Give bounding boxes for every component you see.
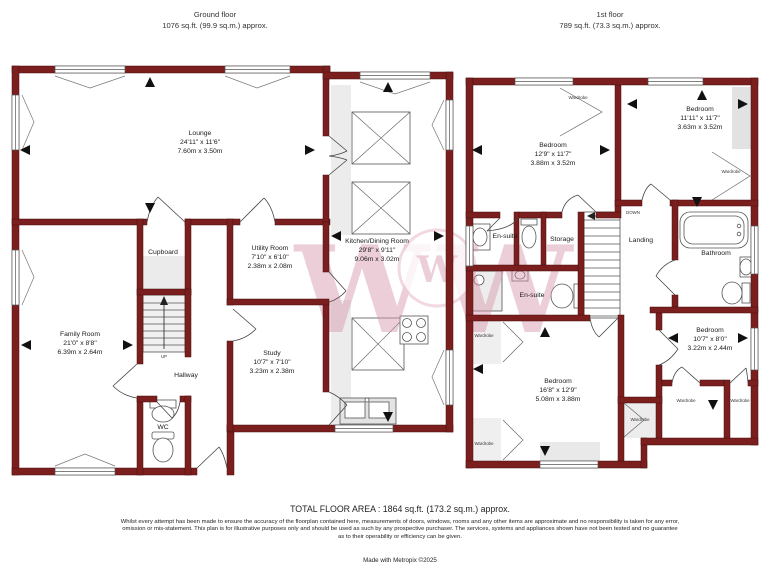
wardrobe-label: Wardrobe xyxy=(721,169,740,174)
room-label-lounge: Lounge 24'11" x 11'6" 7.60m x 3.50m xyxy=(178,130,223,156)
wardrobe-label: Wardrobe xyxy=(474,333,493,338)
room-label-ensuite-bottom: En-suite xyxy=(520,292,545,299)
bath-icon xyxy=(680,212,748,248)
room-label-bedroom2: Bedroom 11'11" x 11'7" 3.63m x 3.52m xyxy=(678,106,723,132)
wc-sink-icon xyxy=(150,400,176,422)
bathroom-toilet-icon xyxy=(722,282,750,304)
room-label-kitchen: Kitchen/Dining Room 29'8" x 9'11" 9.06m … xyxy=(345,238,409,264)
disclaimer-text: Whilst every attempt has been made to en… xyxy=(120,519,680,541)
wc-toilet-icon xyxy=(152,432,174,462)
room-label-storage: Storage xyxy=(550,236,574,243)
stairs-up-label: UP xyxy=(161,354,167,359)
room-label-wc: WC xyxy=(157,424,168,431)
room-label-bedroom4: Bedroom 16'8" x 12'9" 5.08m x 3.88m xyxy=(536,378,581,404)
wardrobe-label: Wardrobe xyxy=(474,441,493,446)
room-label-study: Study 10'7" x 7'10" 3.23m x 2.38m xyxy=(250,350,295,376)
stairs-down-label: DOWN xyxy=(626,210,640,215)
room-label-utility: Utility Room 7'10" x 6'10" 2.38m x 2.08m xyxy=(248,245,293,271)
stairs-down xyxy=(584,212,620,318)
room-label-bedroom1: Bedroom 12'9" x 11'7" 3.88m x 3.52m xyxy=(531,142,576,168)
room-label-landing: Landing xyxy=(629,237,653,244)
floorplan-drawing: W W W xyxy=(0,0,768,576)
watermark-logo: W W W xyxy=(293,220,575,361)
room-label-cupboard: Cupboard xyxy=(148,249,178,256)
room-label-hallway: Hallway xyxy=(174,372,198,379)
first-floor-title: 1st floor 789 sq.ft. (73.3 sq.m.) approx… xyxy=(559,10,660,31)
room-label-ensuite-top: En-suite xyxy=(493,233,518,240)
ground-floor-title: Ground floor 1076 sq.ft. (99.9 sq.m.) ap… xyxy=(162,10,268,31)
total-floor-area: TOTAL FLOOR AREA : 1864 sq.ft. (173.2 sq… xyxy=(290,504,510,514)
room-label-bedroom3: Bedroom 10'7" x 8'0" 3.22m x 2.44m xyxy=(688,327,733,353)
room-label-family: Family Room 21'0" x 8'8" 6.39m x 2.64m xyxy=(58,331,103,357)
metropix-credit: Made with Metropix ©2025 xyxy=(363,557,437,564)
wardrobe-label: Wardrobe xyxy=(676,398,695,403)
wardrobe-label: Wardrobe xyxy=(630,417,649,422)
floorplan-canvas: W W W xyxy=(0,0,768,576)
wardrobe-label: Wardrobe xyxy=(730,398,749,403)
room-label-bathroom: Bathroom xyxy=(701,250,730,257)
wardrobe-label: Wardrobe xyxy=(568,95,587,100)
